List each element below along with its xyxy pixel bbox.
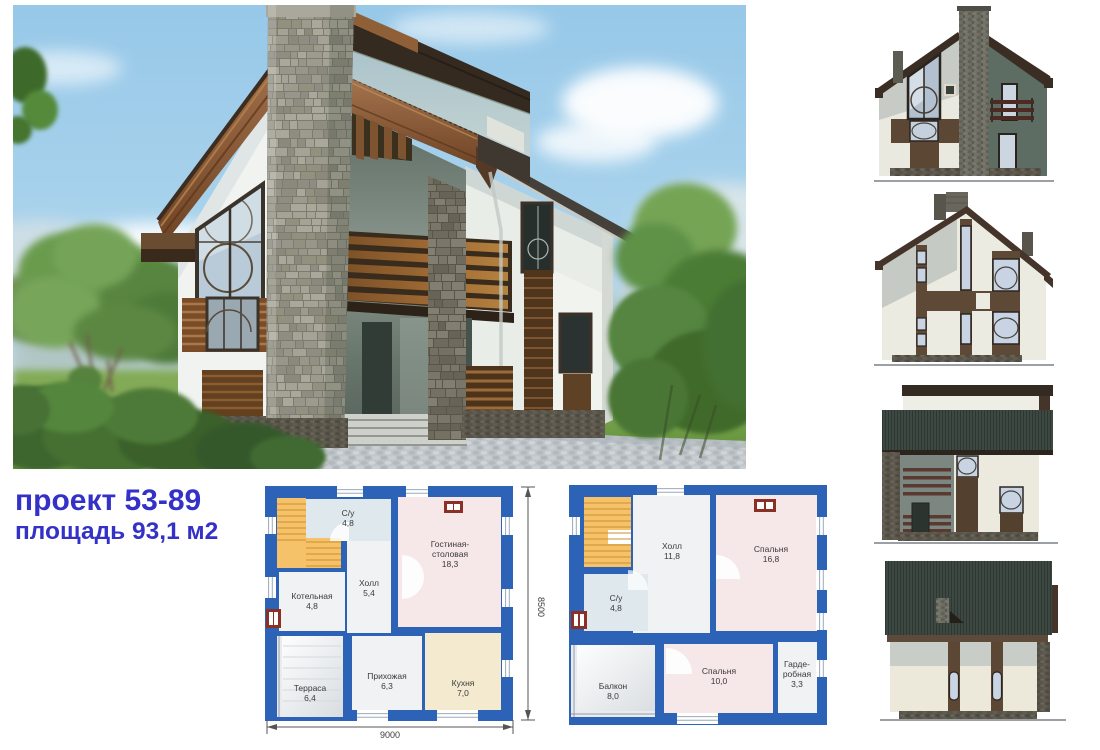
- svg-text:Кухня: Кухня: [452, 678, 475, 688]
- svg-text:С/у: С/у: [342, 508, 356, 518]
- svg-text:робная: робная: [783, 669, 812, 679]
- svg-text:Терраса: Терраса: [294, 683, 327, 693]
- svg-text:4,8: 4,8: [342, 518, 354, 528]
- svg-text:Спальня: Спальня: [754, 544, 789, 554]
- svg-text:Спальня: Спальня: [702, 666, 737, 676]
- svg-text:5,4: 5,4: [363, 588, 375, 598]
- svg-text:Котельная: Котельная: [291, 591, 333, 601]
- svg-text:Холл: Холл: [359, 578, 379, 588]
- svg-text:8,0: 8,0: [607, 691, 619, 701]
- svg-text:7,0: 7,0: [457, 688, 469, 698]
- svg-text:Гарде-: Гарде-: [784, 659, 810, 669]
- svg-text:Балкон: Балкон: [599, 681, 628, 691]
- svg-text:столовая: столовая: [432, 549, 469, 559]
- svg-text:площадь 93,1 м2: площадь 93,1 м2: [15, 518, 218, 545]
- svg-text:9000: 9000: [380, 730, 400, 740]
- svg-text:4,8: 4,8: [610, 603, 622, 613]
- svg-text:Гостиная-: Гостиная-: [431, 539, 470, 549]
- svg-text:3,3: 3,3: [791, 679, 803, 689]
- svg-text:6,4: 6,4: [304, 693, 316, 703]
- svg-text:10,0: 10,0: [711, 676, 728, 686]
- svg-text:Холл: Холл: [662, 541, 682, 551]
- svg-text:С/у: С/у: [610, 593, 624, 603]
- svg-text:11,8: 11,8: [664, 551, 680, 561]
- svg-text:Прихожая: Прихожая: [367, 671, 407, 681]
- svg-text:проект 53-89: проект 53-89: [15, 484, 201, 517]
- svg-text:8500: 8500: [536, 597, 546, 617]
- svg-text:16,8: 16,8: [763, 554, 780, 564]
- svg-text:4,8: 4,8: [306, 601, 318, 611]
- svg-text:18,3: 18,3: [442, 559, 459, 569]
- svg-text:6,3: 6,3: [381, 681, 393, 691]
